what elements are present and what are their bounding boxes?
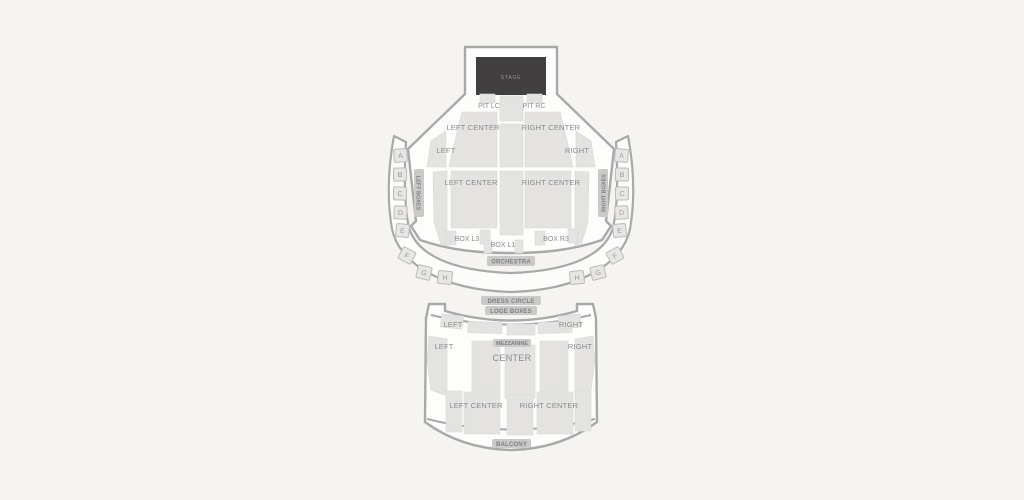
section-balc-mezz-right-center[interactable] — [540, 341, 568, 396]
right-boxes-title: RIGHT BOXES — [602, 174, 608, 212]
pit-rc-label: PIT RC — [523, 103, 546, 110]
seating-chart: STAGE PIT LC PIT RC LEFT CENTER RIGHT CE… — [0, 0, 1024, 500]
section-balc-rear-left-center[interactable] — [464, 392, 500, 434]
box-right-b-label: B — [620, 172, 625, 179]
balc-rear-right-center-label: RIGHT CENTER — [520, 401, 579, 410]
right-boxes-title-group: RIGHT BOXES — [598, 169, 608, 217]
box-right-c-label: C — [619, 191, 624, 198]
section-balc-rear-right[interactable] — [575, 390, 591, 431]
section-balc-mezz-left-center[interactable] — [472, 341, 500, 396]
orchestra-label: ORCHESTRA — [491, 260, 531, 266]
balc-mezz-right-label: RIGHT — [568, 342, 593, 351]
stage-label: STAGE — [501, 75, 522, 81]
front-right-center-label: RIGHT CENTER — [522, 123, 581, 132]
section-box-l1-b[interactable] — [515, 240, 523, 253]
box-left-d-label: D — [398, 210, 403, 217]
mezzanine-label: MEZZANINE — [496, 341, 528, 347]
dress-circle-label: DRESS CIRCLE — [487, 299, 534, 305]
box-left-c-label: C — [397, 191, 402, 198]
box-right-d-label: D — [619, 210, 624, 217]
balc-mezz-left-label: LEFT — [434, 342, 453, 351]
box-left-a-label: A — [398, 153, 403, 160]
left-boxes-title: LEFT BOXES — [415, 176, 421, 211]
balcony-label: BALCONY — [496, 442, 527, 448]
section-box-r3-b[interactable] — [568, 229, 578, 243]
box-left-h-label: H — [442, 275, 448, 282]
balc-center-label: CENTER — [493, 353, 532, 363]
section-pit-center[interactable] — [500, 96, 523, 121]
front-left-label: LEFT — [436, 146, 455, 155]
left-boxes-title-group: LEFT BOXES — [414, 169, 424, 217]
front-right-label: RIGHT — [565, 146, 590, 155]
balc-loge-right-label: RIGHT — [559, 320, 584, 329]
box-r3-label: BOX R3 — [543, 236, 569, 243]
seat-map-canvas: STAGE PIT LC PIT RC LEFT CENTER RIGHT CE… — [0, 0, 1024, 500]
section-orch-rear-center[interactable] — [500, 171, 523, 235]
box-l3-label: BOX L3 — [455, 236, 480, 243]
section-pit-right[interactable] — [527, 94, 542, 103]
box-right-a-label: A — [619, 153, 624, 160]
balc-rear-left-center-label: LEFT CENTER — [449, 401, 503, 410]
section-balc-rear-left[interactable] — [446, 391, 462, 432]
balc-loge-left-label: LEFT — [443, 320, 462, 329]
section-pit-left[interactable] — [480, 94, 495, 103]
section-balc-loge-left-mid[interactable] — [468, 321, 502, 333]
rear-left-center-label: LEFT CENTER — [444, 178, 498, 187]
pit-lc-label: PIT LC — [478, 103, 500, 110]
box-left-b-label: B — [398, 172, 403, 179]
loge-boxes-label: LOGE BOXES — [490, 309, 532, 315]
box-right-h-label: H — [574, 275, 580, 282]
box-l1-label: BOX L1 — [491, 242, 516, 249]
front-left-center-label: LEFT CENTER — [446, 123, 500, 132]
section-balc-loge-center[interactable] — [507, 324, 535, 335]
section-balc-rear-right-center[interactable] — [537, 392, 573, 434]
rear-right-center-label: RIGHT CENTER — [522, 178, 581, 187]
section-orch-front-center[interactable] — [500, 124, 523, 167]
